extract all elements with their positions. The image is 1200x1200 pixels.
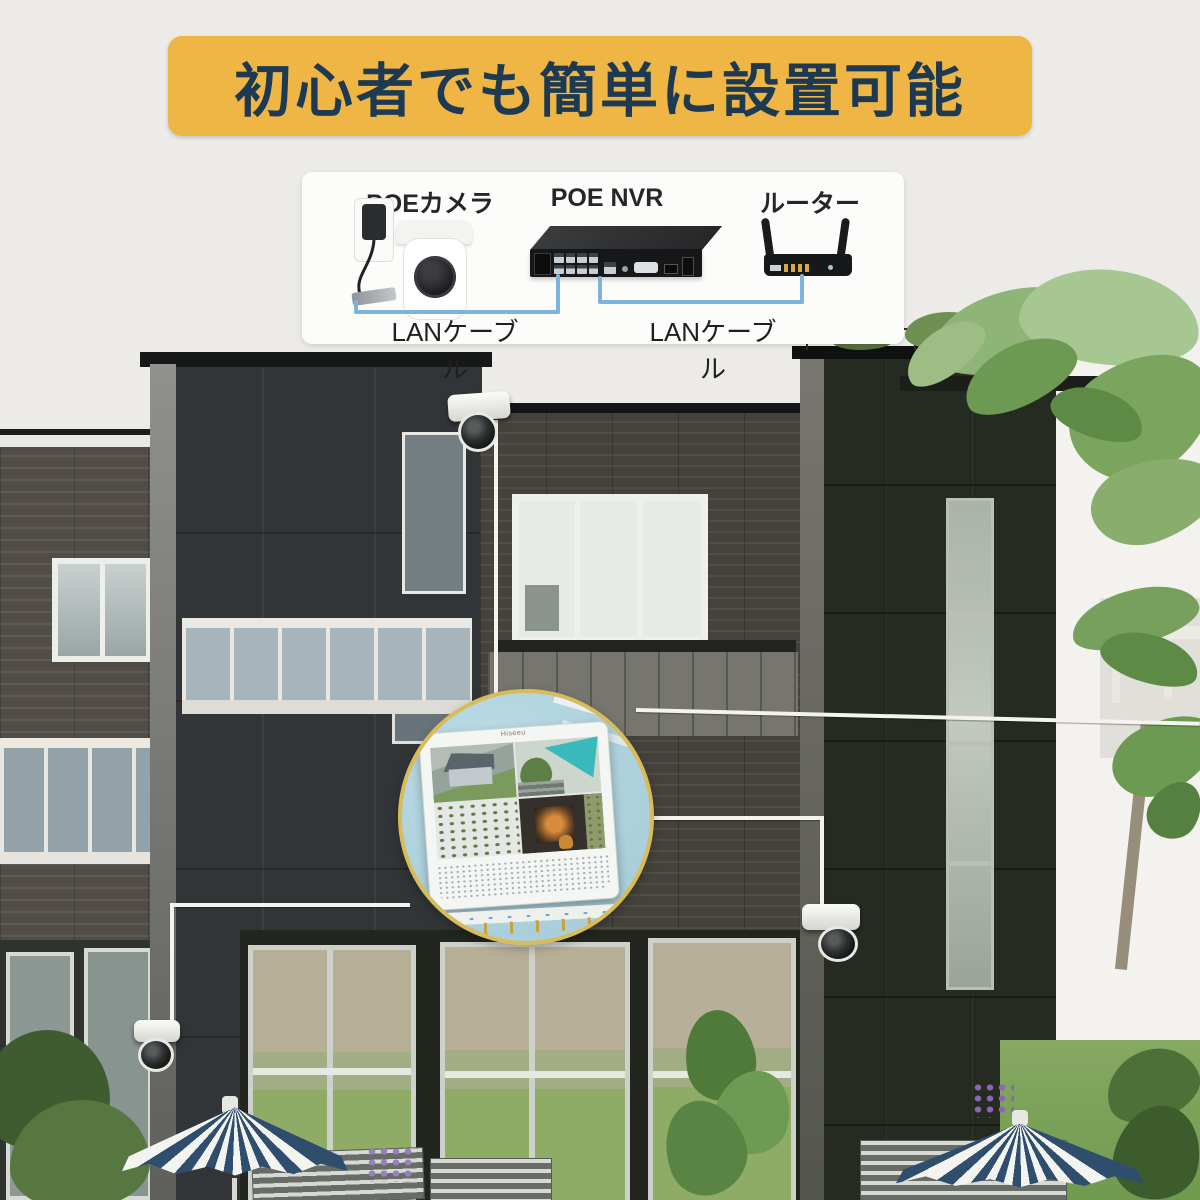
setup-diagram-panel: POEカメラ POE NVR ルーター: [302, 172, 904, 344]
balcony-rail-bottom: [0, 852, 172, 864]
mounted-camera-left-lens: [138, 1038, 174, 1072]
window-mullion: [575, 501, 580, 637]
balcony-rail-top: [182, 618, 472, 628]
left-roof-trim: [0, 435, 165, 447]
router-body: [764, 254, 852, 276]
router-label-sticker: [770, 265, 781, 271]
header-banner: 初心者でも簡単に設置可能: [168, 36, 1032, 136]
balcony-glass: [0, 748, 172, 852]
product-image: Hiseeu: [0, 0, 1200, 1200]
center-coping: [474, 403, 808, 413]
house-wall: [448, 767, 492, 786]
balcony-base: [182, 700, 472, 714]
router-lan-ports: [784, 264, 810, 272]
nvr-front-face: [530, 249, 702, 277]
nvr-monitor: Hiseeu: [418, 721, 620, 912]
nvr-top-face: [530, 226, 722, 250]
tall-plant: [655, 1010, 795, 1200]
door-transom: [253, 1068, 411, 1075]
nvr-wan-port: [604, 262, 616, 274]
window-mullion: [100, 564, 105, 656]
camera-cable-run-right-down: [820, 816, 824, 908]
nvr-audio-jack: [622, 266, 628, 272]
window-mullion: [637, 501, 642, 637]
palm-fronds-right: [1040, 580, 1200, 840]
camera-cable-run-left: [172, 903, 410, 907]
nvr-psu: [534, 253, 551, 275]
poe-camera-lens: [414, 256, 456, 298]
nvr-vga-port: [634, 262, 658, 273]
center-window-sill: [496, 640, 796, 652]
camera-cable-run-top: [494, 420, 498, 696]
lan-cable-router-up: [800, 274, 804, 304]
nvr-hdmi-port: [664, 264, 678, 274]
lan-cable-label-left: LANケーブル: [380, 312, 530, 386]
lan-cable-label-right: LANケーブル: [638, 312, 788, 386]
lan-cable-right-horizontal: [598, 300, 804, 304]
umbrella-right: [896, 1110, 1144, 1200]
monitor-speaker-grille: [436, 854, 610, 900]
tower-window-upper: [402, 432, 466, 594]
umbrella-pole: [232, 1178, 237, 1200]
lan-cable-left-up: [556, 274, 560, 314]
left-window: [52, 558, 152, 662]
window-mullion: [949, 611, 991, 616]
camera-feed-grid: [430, 736, 605, 859]
feed-fireplace: [519, 793, 606, 854]
palm-canopy: [900, 270, 1200, 590]
feed-crop-field: [434, 799, 521, 860]
nvr-poe-ports: [554, 253, 598, 274]
flowers-purple: [366, 1146, 412, 1182]
outdoor-bench-left-2: [430, 1158, 552, 1200]
left-balcony: [0, 738, 172, 864]
banner-title: 初心者でも簡単に設置可能: [234, 44, 966, 128]
balcony-rail-top: [0, 738, 172, 748]
camera-cable-run-right-mid: [640, 816, 824, 820]
nvr-label: POE NVR: [535, 184, 679, 213]
balcony-glass: [182, 628, 472, 700]
feed-house: [430, 742, 517, 803]
camera-cable-run-left-down: [170, 903, 174, 1025]
mounted-camera-top-lens: [458, 412, 498, 452]
center-big-window: [512, 494, 708, 644]
router-wps-button: [828, 265, 833, 270]
lan-cable-right-down: [598, 276, 602, 302]
umbrella-canopy: [122, 1106, 348, 1180]
door-transom: [445, 1071, 625, 1078]
window-reflection: [525, 585, 559, 631]
router-label: ルーター: [738, 184, 882, 220]
window-mullion: [949, 741, 991, 746]
window-mullion: [949, 861, 991, 866]
tower-edge-highlight: [150, 364, 176, 1200]
umbrella-canopy: [896, 1122, 1144, 1190]
monitor-inset: Hiseeu: [398, 689, 654, 945]
crop-strip: [583, 793, 605, 849]
umbrella-left: [122, 1096, 348, 1200]
feed-patio: [515, 736, 602, 797]
mid-balcony: [182, 618, 472, 714]
right-tower-edge: [800, 356, 824, 1200]
nvr-usb-ports: [682, 257, 694, 276]
patio-steps: [518, 780, 565, 797]
mounted-camera-right-lens: [818, 926, 858, 962]
